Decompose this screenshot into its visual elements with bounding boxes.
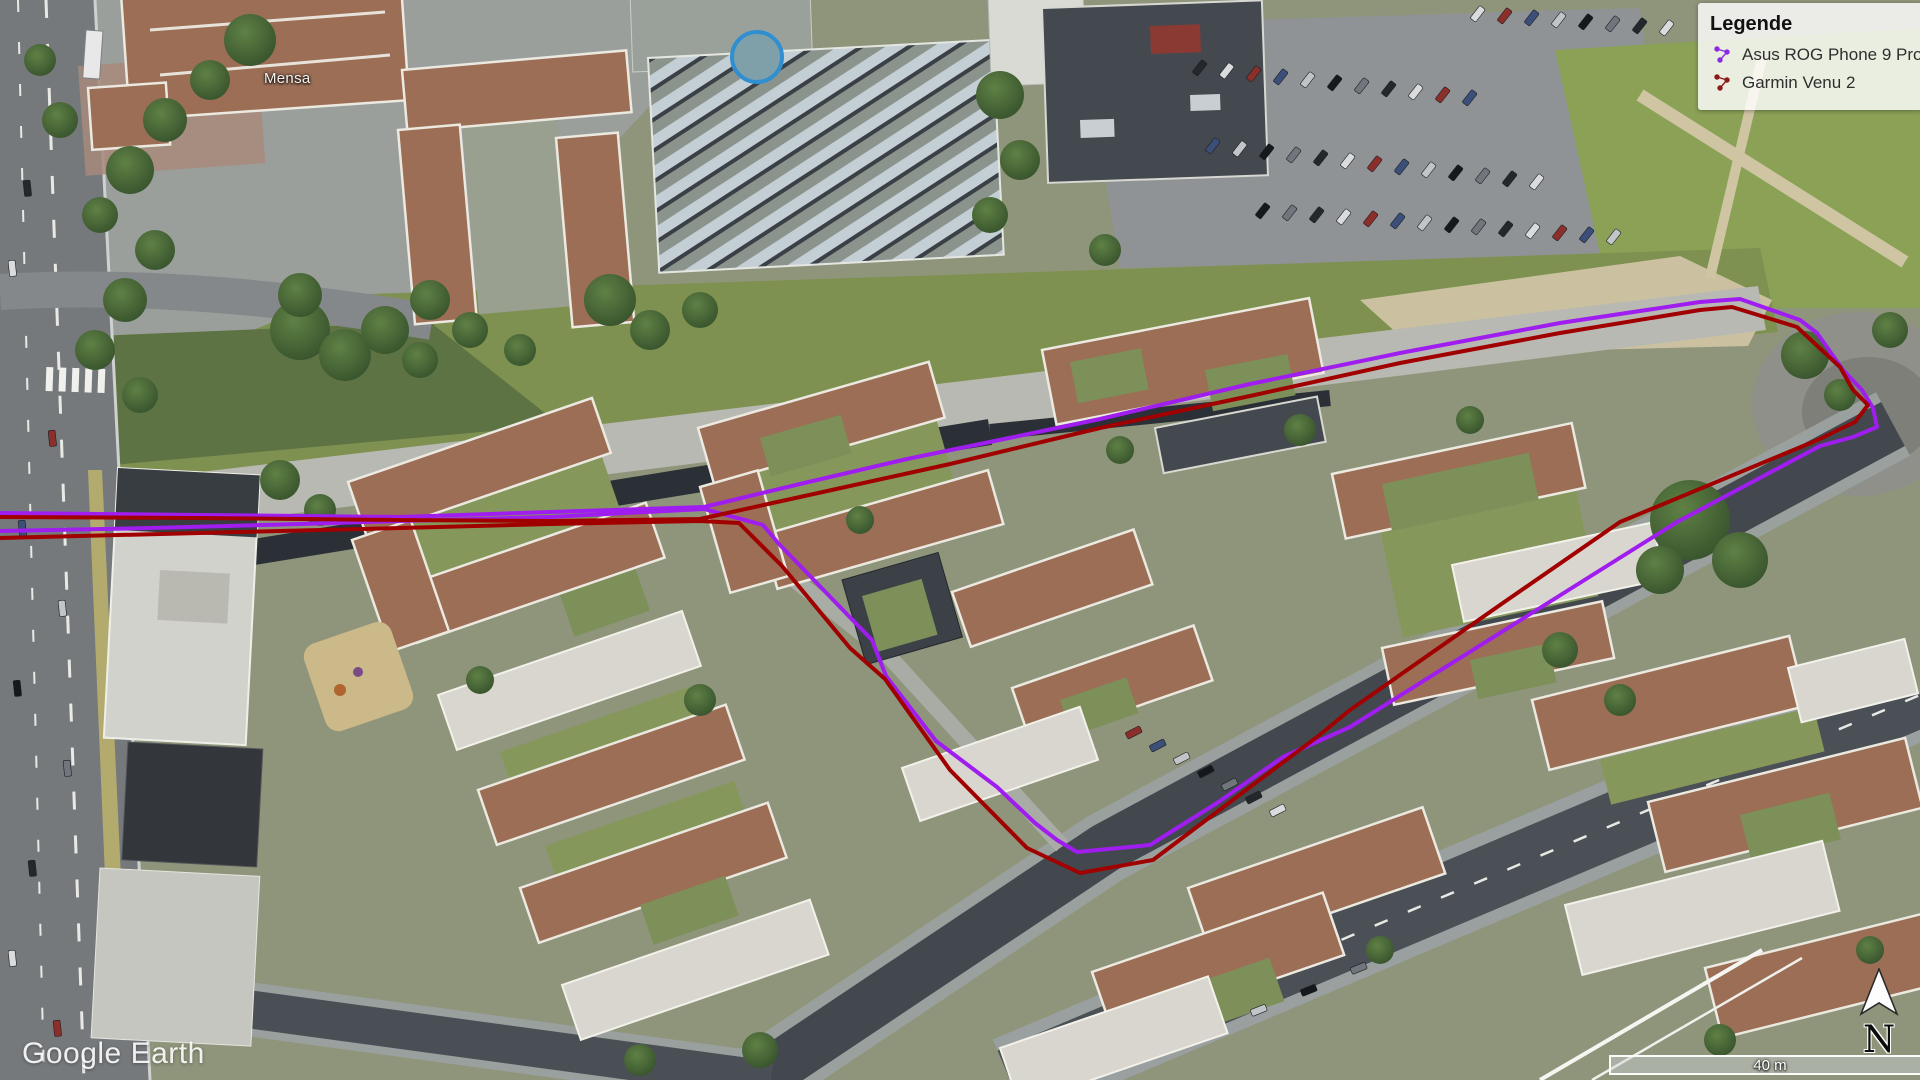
- legend-item-garmin: Garmin Venu 2: [1710, 72, 1910, 94]
- track-glyph-icon: [1712, 72, 1734, 94]
- north-letter: N: [1853, 1023, 1905, 1057]
- place-label-mensa: Mensa: [264, 70, 311, 87]
- google-earth-watermark: Google Earth: [22, 1037, 205, 1071]
- gps-track-layer: [0, 0, 1920, 1080]
- north-arrow-icon: [1853, 968, 1905, 1016]
- map-canvas[interactable]: Mensa Legende Asus ROG Phone 9 Pro Garmi…: [0, 0, 1920, 1080]
- legend-panel: Legende Asus ROG Phone 9 Pro Garmin Venu…: [1698, 3, 1920, 110]
- gps-track-garmin-venu-2: [0, 307, 1868, 873]
- north-indicator: N: [1853, 968, 1905, 1054]
- track-glyph-icon: [1712, 44, 1734, 66]
- legend-label-asus: Asus ROG Phone 9 Pro: [1742, 45, 1920, 65]
- legend-title: Legende: [1710, 13, 1910, 36]
- scale-bar-label: 40 m: [1753, 1057, 1786, 1074]
- gps-track-asus-rog-phone-9-pro: [0, 299, 1877, 852]
- legend-item-asus: Asus ROG Phone 9 Pro: [1710, 44, 1910, 66]
- legend-label-garmin: Garmin Venu 2: [1742, 73, 1855, 93]
